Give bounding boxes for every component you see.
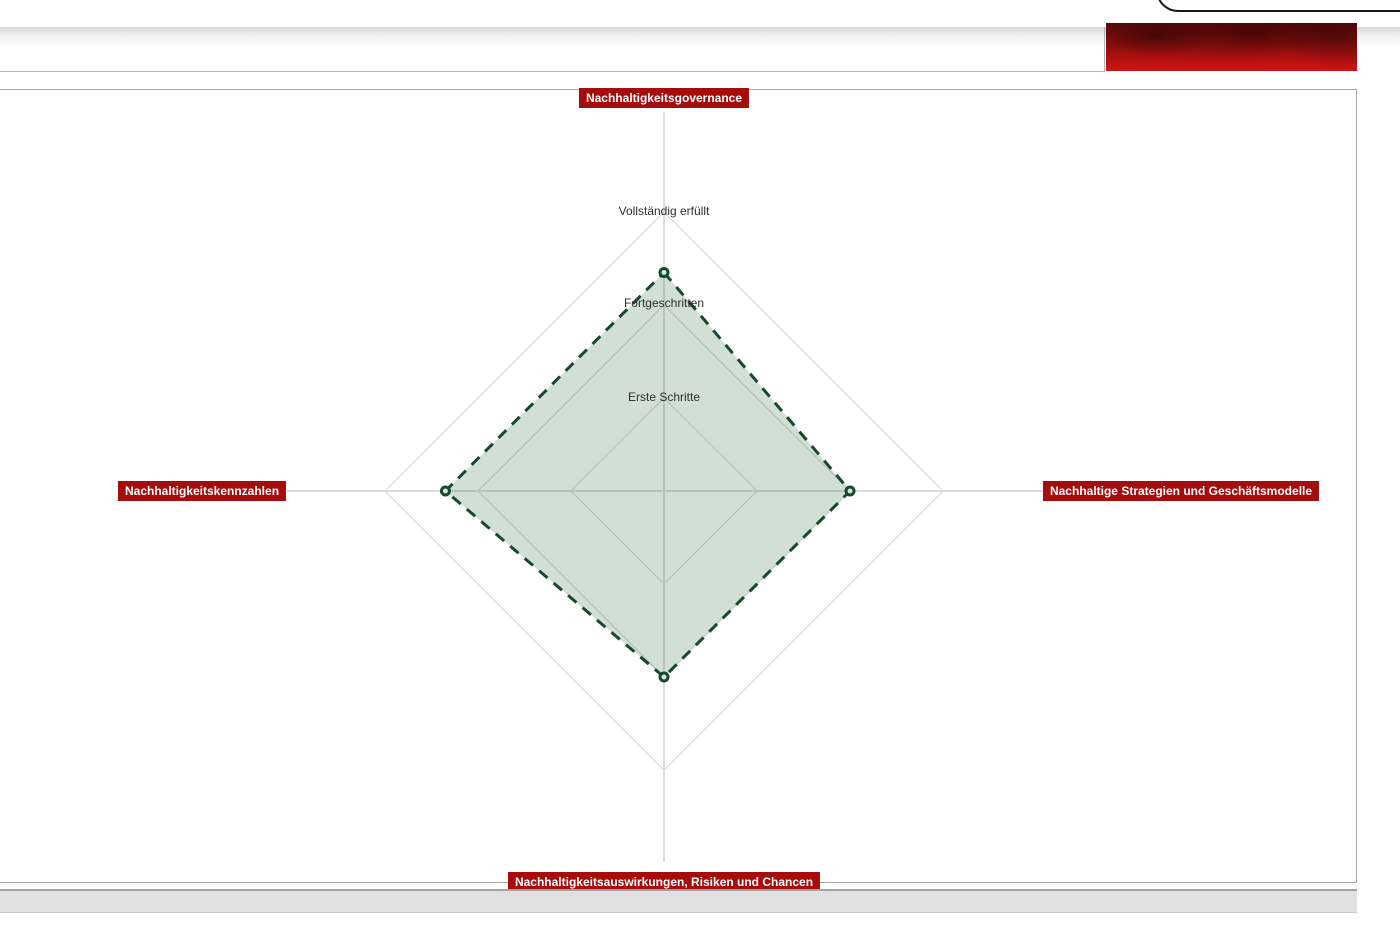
axis-label-nachhaltigkeitsgovernance: Nachhaltigkeitsgovernance (579, 88, 749, 108)
page: Vollständig erfüllt Fortgeschritten Erst… (0, 0, 1400, 934)
data-point-marker[interactable] (660, 268, 668, 276)
logo-card-corner (1156, 0, 1400, 12)
radar-chart-panel: Vollständig erfüllt Fortgeschritten Erst… (0, 89, 1357, 883)
data-point-marker[interactable] (846, 487, 854, 495)
data-point-marker[interactable] (441, 487, 449, 495)
axis-label-nachhaltige-strategien: Nachhaltige Strategien und Geschäftsmode… (1043, 481, 1319, 501)
data-point-marker[interactable] (660, 673, 668, 681)
ring-label-fortgeschritten: Fortgeschritten (624, 296, 704, 310)
keyboard-photo-banner (1106, 23, 1357, 71)
horizontal-scrollbar-track[interactable] (0, 889, 1357, 913)
axis-label-nachhaltigkeitskennzahlen: Nachhaltigkeitskennzahlen (118, 481, 286, 501)
ring-label-vollstaendig-erfuellt: Vollständig erfüllt (619, 204, 710, 218)
ring-label-erste-schritte: Erste Schritte (628, 390, 700, 404)
radar-data-polygon (445, 272, 850, 677)
header-toolbar (0, 27, 1105, 72)
